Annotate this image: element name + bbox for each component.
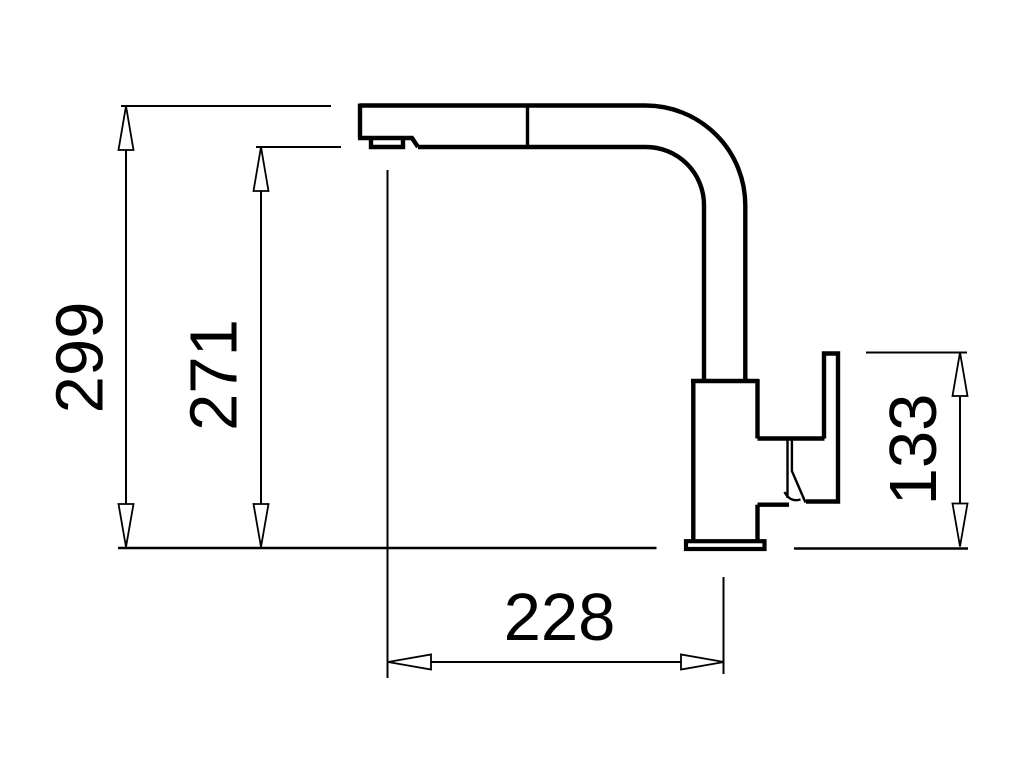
svg-text:299: 299 xyxy=(43,302,118,414)
svg-text:271: 271 xyxy=(177,319,252,431)
svg-text:228: 228 xyxy=(504,580,616,655)
svg-text:133: 133 xyxy=(876,394,951,506)
